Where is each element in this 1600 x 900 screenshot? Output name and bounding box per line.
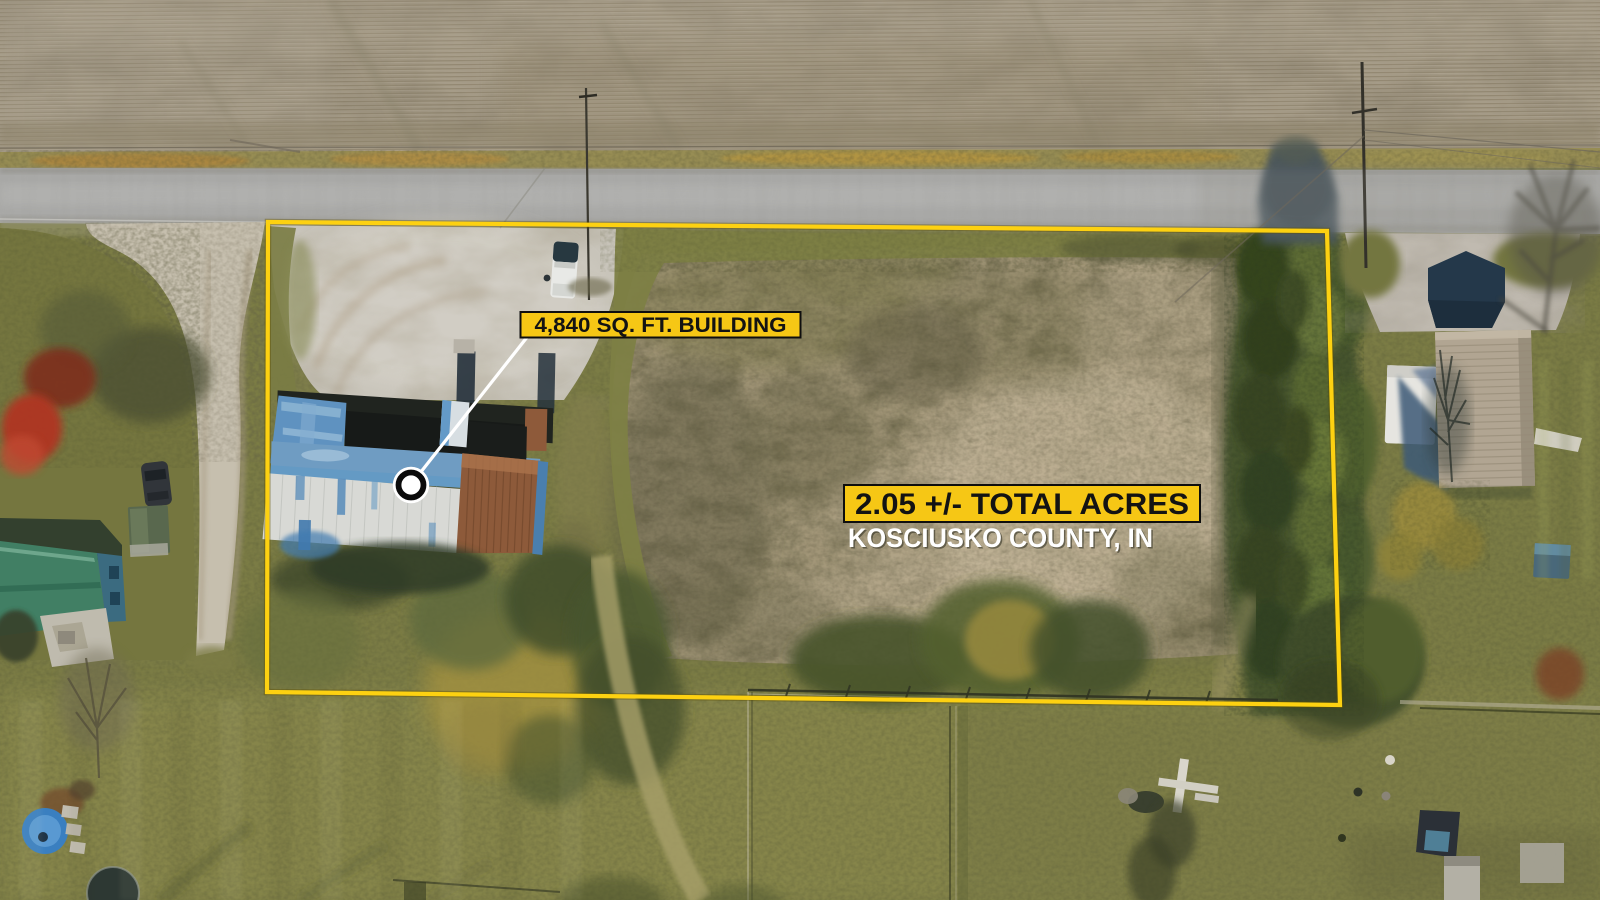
svg-text:KOSCIUSKO COUNTY, IN: KOSCIUSKO COUNTY, IN <box>848 523 1153 553</box>
svg-text:2.05 +/- TOTAL ACRES: 2.05 +/- TOTAL ACRES <box>855 488 1189 521</box>
svg-text:4,840 SQ. FT. BUILDING: 4,840 SQ. FT. BUILDING <box>535 314 787 337</box>
